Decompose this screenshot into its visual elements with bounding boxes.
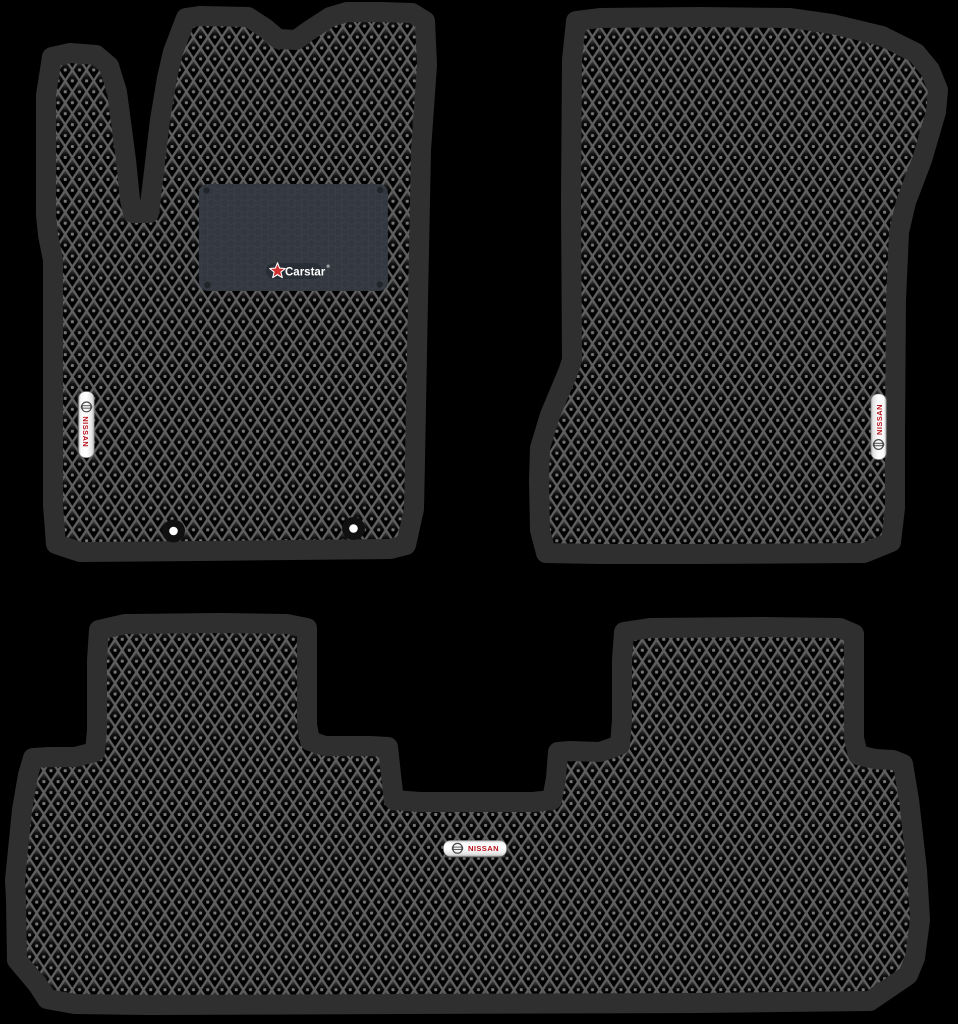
svg-text:Carstar: Carstar [285, 267, 326, 279]
svg-text:NISSAN: NISSAN [875, 404, 884, 435]
svg-text:NISSAN: NISSAN [81, 416, 90, 447]
svg-text:NISSAN: NISSAN [468, 844, 499, 853]
